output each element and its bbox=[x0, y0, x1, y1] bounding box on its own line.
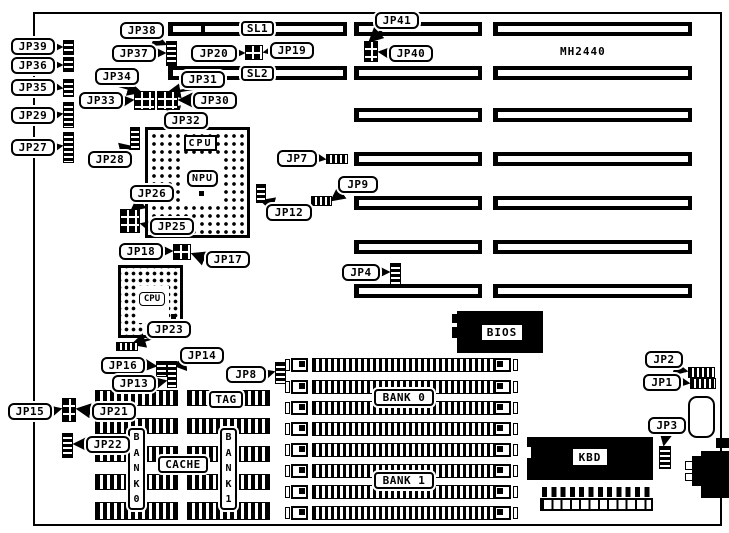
sl1-label: SL1 bbox=[241, 21, 274, 36]
jp37-label: JP37 bbox=[112, 45, 156, 62]
jp15-label: JP15 bbox=[8, 403, 52, 420]
jp35-jumper bbox=[63, 79, 74, 97]
jp3-jumper bbox=[659, 446, 671, 469]
jp19-jp20-jumper bbox=[245, 45, 263, 60]
jp35-label: JP35 bbox=[11, 79, 55, 96]
sl2-label: SL2 bbox=[241, 66, 274, 81]
jp40-leader bbox=[380, 52, 389, 53]
jp22-label: JP22 bbox=[86, 436, 130, 453]
jp31-label: JP31 bbox=[181, 71, 225, 88]
cache-label: CACHE bbox=[158, 456, 208, 473]
jp1-label: JP1 bbox=[643, 374, 681, 391]
jp17-label: JP17 bbox=[206, 251, 250, 268]
jp2-label: JP2 bbox=[645, 351, 683, 368]
jp41-label: JP41 bbox=[375, 12, 419, 29]
jp36-label: JP36 bbox=[11, 57, 55, 74]
jp30-jp31-jp32-jumper bbox=[157, 91, 178, 110]
jp1-leader bbox=[681, 382, 688, 383]
jp29-label: JP29 bbox=[11, 107, 55, 124]
jp25-leader bbox=[142, 224, 150, 226]
jp28-label: JP28 bbox=[88, 151, 132, 168]
jp23-jumper bbox=[116, 342, 138, 351]
jp27-leader bbox=[55, 146, 61, 147]
jp21-leader bbox=[78, 409, 92, 411]
jp17-leader bbox=[193, 254, 206, 259]
jp30-label: JP30 bbox=[193, 92, 237, 109]
jp33-leader bbox=[123, 100, 132, 101]
jp37-jp38-jumper bbox=[166, 41, 177, 66]
jp3-leader bbox=[664, 434, 666, 444]
jp29-leader bbox=[55, 114, 61, 115]
jp7-label: JP7 bbox=[277, 150, 317, 167]
jp41-leader bbox=[370, 29, 383, 41]
jp15-jp21-jumper bbox=[62, 398, 76, 422]
jp13-jp14-jumper bbox=[167, 361, 177, 388]
cache-bank1-vertical-label: B A N K 1 bbox=[220, 428, 237, 510]
jp27-jumper bbox=[63, 132, 74, 163]
jp25-jp26-jumper bbox=[120, 209, 140, 233]
jp13-label: JP13 bbox=[112, 375, 156, 392]
motherboard-diagram: MH2440 bbox=[0, 0, 729, 533]
jp32-label: JP32 bbox=[164, 112, 208, 129]
tag-label: TAG bbox=[209, 391, 243, 408]
jp39-label: JP39 bbox=[11, 38, 55, 55]
jp21-label: JP21 bbox=[92, 403, 136, 420]
jp19-label: JP19 bbox=[270, 42, 314, 59]
jp2-jumper bbox=[688, 367, 715, 378]
jp4-label: JP4 bbox=[342, 264, 380, 281]
jp14-label: JP14 bbox=[180, 347, 224, 364]
jp3-label: JP3 bbox=[648, 417, 686, 434]
jp15-leader bbox=[52, 409, 60, 411]
jp33-label: JP33 bbox=[79, 92, 123, 109]
jp1-jumper bbox=[690, 378, 716, 389]
jp18-label: JP18 bbox=[119, 243, 163, 260]
jp13-leader bbox=[156, 381, 165, 383]
jp9-leader bbox=[332, 194, 340, 200]
jp23-label: JP23 bbox=[147, 321, 191, 338]
jp38-label: JP38 bbox=[120, 22, 164, 39]
jp34-label: JP34 bbox=[95, 68, 139, 85]
jp12-label: JP12 bbox=[266, 204, 312, 221]
jp40-jp41-jumper bbox=[364, 41, 378, 62]
jp16-leader bbox=[145, 365, 155, 366]
jp7-jumper bbox=[326, 154, 348, 164]
jp12-jumper bbox=[256, 184, 266, 203]
jp8-leader bbox=[266, 372, 273, 374]
jp39-jumper bbox=[63, 40, 74, 55]
bank1-label: BANK 1 bbox=[374, 472, 434, 489]
jp8-jumper bbox=[275, 362, 286, 384]
jp33-jp34-jumper bbox=[134, 91, 155, 110]
jp17-jp18-jumper bbox=[173, 244, 191, 260]
jp9-jumper bbox=[311, 196, 332, 206]
jp2-leader bbox=[672, 368, 686, 371]
jp26-label: JP26 bbox=[130, 185, 174, 202]
cache-bank0-vertical-label: B A N K 0 bbox=[128, 428, 145, 510]
jp9-label: JP9 bbox=[338, 176, 378, 193]
jp28-jumper bbox=[130, 127, 140, 150]
jp16-jumper bbox=[156, 361, 167, 377]
jp40-label: JP40 bbox=[389, 45, 433, 62]
jp22-jumper bbox=[62, 433, 73, 458]
jp4-jumper bbox=[390, 263, 401, 285]
jp16-label: JP16 bbox=[101, 357, 145, 374]
jp35-leader bbox=[55, 87, 61, 88]
jp8-label: JP8 bbox=[226, 366, 266, 383]
jp27-label: JP27 bbox=[11, 139, 55, 156]
jp20-label: JP20 bbox=[191, 45, 237, 62]
jp7-leader bbox=[317, 158, 324, 159]
jp25-label: JP25 bbox=[150, 218, 194, 235]
jp29-jumper bbox=[63, 102, 74, 128]
jp36-jumper bbox=[63, 57, 74, 72]
bank0-label: BANK 0 bbox=[374, 389, 434, 406]
